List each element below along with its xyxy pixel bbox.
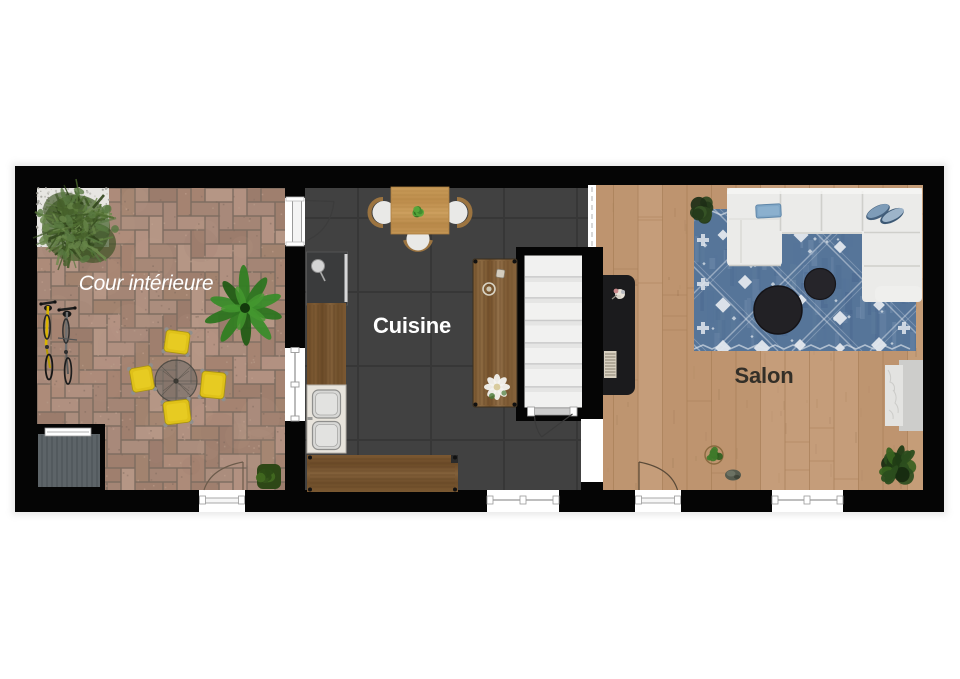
- svg-text:Cour intérieure: Cour intérieure: [79, 272, 213, 295]
- svg-text:Cuisine: Cuisine: [373, 313, 451, 338]
- svg-text:Salon: Salon: [735, 363, 794, 388]
